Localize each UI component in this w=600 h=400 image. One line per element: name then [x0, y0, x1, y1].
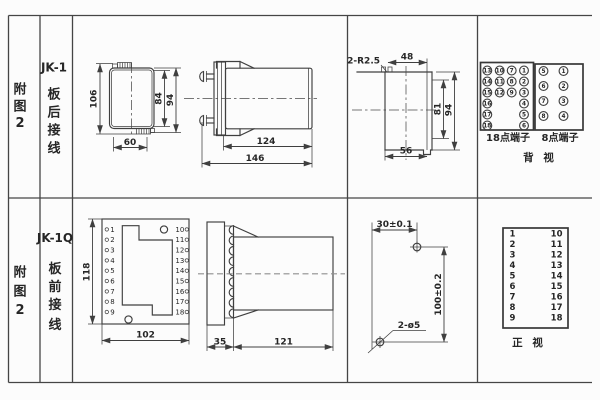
row2-side-view: 35 121: [198, 222, 345, 351]
terminal-number: 9: [510, 314, 516, 324]
row2-wiring-char: 接: [48, 297, 61, 313]
chamfer-line: [240, 62, 254, 69]
row2-index-cell: 附 图 2: [13, 265, 26, 319]
radius-callout: 2-R2.5: [347, 57, 380, 67]
terminal18-circles: 13 14 15 16 17 18 10 11 12 7 8 9 1 2 3 4…: [483, 66, 528, 130]
terminal-number: 5: [522, 113, 526, 119]
chamfer-line: [234, 310, 259, 318]
row1-back-terminals: 13 14 15 16 17 18 10 11 12 7 8 9 1 2 3 4…: [481, 63, 584, 165]
row2-front-terminal-table: 1 2 3 4 5 6 7 8 9 10 11 12 13 14 15 16 1…: [503, 228, 568, 349]
row1-wiring-char: 接: [47, 123, 60, 139]
dim-label-94: 94: [166, 94, 176, 107]
row2-model-cell: JK-1Q 板 前 接 线: [36, 231, 73, 333]
terminal-number: 10: [551, 230, 563, 240]
terminal-table-right-column: 10 11 12 13 14 15 16 17 18: [551, 230, 563, 324]
mount-hole: [160, 226, 167, 233]
terminal-number: 3: [522, 91, 526, 97]
terminal-number: 11: [175, 236, 184, 244]
dim-label-84: 84: [155, 92, 165, 105]
terminal-number: 2: [110, 236, 114, 244]
dim-label-48: 48: [401, 53, 414, 63]
dim-label-30: 30±0.1: [376, 220, 412, 230]
terminal-number: 8: [510, 80, 514, 86]
row2-model-label: JK-1Q: [36, 231, 73, 245]
terminal-number: 14: [483, 80, 491, 86]
row2-front-view: 1 2 3 4 5 6 7 8 9 10 11 12 13 14 15 16 1…: [83, 219, 190, 345]
terminal-number: 7: [510, 293, 516, 303]
screw-tab-hatched: [137, 129, 151, 135]
row2-index-char: 附: [13, 265, 26, 281]
dim-label-60: 60: [124, 138, 137, 148]
terminal-number: 13: [551, 261, 563, 271]
terminal-number: 4: [110, 257, 115, 265]
terminal-number: 8: [541, 114, 545, 120]
terminal-number: 6: [522, 124, 526, 130]
terminal-number: 12: [496, 91, 504, 97]
dim-label-35: 35: [214, 338, 227, 348]
terminal-number: 2: [510, 240, 516, 250]
terminal-number: 9: [110, 309, 114, 317]
terminal-number: 10: [496, 69, 504, 75]
terminal-number: 15: [551, 282, 563, 292]
terminal-number: 8: [510, 303, 516, 313]
terminal8-circles: 5 6 7 8 1 2 3 4: [539, 67, 568, 121]
terminal-number: 5: [510, 272, 516, 282]
screw-head: [200, 116, 204, 126]
screw-tab: [113, 64, 118, 68]
terminal-number: 4: [510, 261, 516, 271]
terminal-number: 5: [110, 267, 114, 275]
dim-label-118: 118: [83, 263, 93, 282]
row1-model-label: JK-1: [40, 61, 67, 75]
terminal-number: 4: [561, 114, 565, 120]
row1-index-char: 2: [15, 116, 24, 131]
terminal-number: 12: [551, 251, 563, 261]
mount-hole: [125, 316, 132, 323]
terminal-number: 2: [561, 84, 565, 90]
terminal-number: 16: [551, 293, 563, 303]
terminal-number: 1: [510, 230, 516, 240]
terminal-number: 6: [541, 84, 545, 90]
row1-index-char: 附: [13, 82, 26, 98]
r2.5-notch: [388, 67, 392, 72]
dim-label-100: 100±0.2: [434, 273, 444, 315]
dim-label-81: 81: [434, 103, 444, 116]
dim-label-94: 94: [445, 104, 455, 117]
terminal-number: 12: [175, 247, 184, 255]
terminal-number: 17: [175, 298, 184, 306]
terminal-table-left-column: 1 2 3 4 5 6 7 8 9: [510, 230, 516, 324]
terminal-screws-stack: [229, 226, 233, 318]
terminal-number: 16: [483, 102, 491, 108]
terminal-number: 3: [110, 247, 114, 255]
front-left-terminals: 1 2 3 4 5 6 7 8 9: [105, 226, 115, 317]
terminal-number: 6: [510, 282, 516, 292]
rear-view-label: 背 视: [523, 151, 557, 164]
row2-wiring-char: 线: [48, 317, 61, 333]
terminal-number: 17: [483, 113, 491, 119]
terminal-number: 16: [175, 288, 184, 296]
terminal-number: 13: [483, 69, 491, 75]
terminal-number: 7: [510, 69, 514, 75]
technical-drawing-sheet: 附 图 2 JK-1 板 后 接 线 106 84 94 60: [0, 0, 600, 400]
terminal-number: 1: [110, 226, 114, 234]
row2-index-char: 图: [13, 285, 26, 300]
hole-callout: 2-ø5: [398, 321, 420, 331]
chamfer-line: [234, 226, 259, 237]
terminal-number: 18: [483, 124, 491, 130]
row1-model-cell: JK-1 板 后 接 线: [40, 61, 67, 157]
front-view-label: 正 视: [512, 336, 546, 349]
terminal-number: 18: [175, 309, 184, 317]
row1-wiring-char: 板: [47, 87, 61, 103]
front-right-terminals: 10 11 12 13 14 15 16 17 18: [175, 226, 188, 317]
terminal-number: 7: [110, 288, 114, 296]
terminal-number: 10: [175, 226, 184, 234]
terminal-number: 15: [483, 91, 491, 97]
terminal-number: 13: [175, 257, 184, 265]
row1-index-cell: 附 图 2: [13, 82, 26, 132]
terminal-number: 17: [551, 303, 563, 313]
row2-mounting-holes: 30±0.1 100±0.2 2-ø5: [368, 220, 448, 353]
terminal-number: 14: [551, 272, 563, 282]
terminal-number: 15: [175, 278, 184, 286]
terminal-number: 18: [551, 314, 563, 324]
chamfer-line: [240, 129, 254, 136]
row1-wiring-char: 后: [47, 105, 60, 121]
terminal-number: 5: [541, 69, 545, 75]
dim-label-124: 124: [257, 137, 276, 147]
terminal-number: 14: [175, 267, 184, 275]
screw-tab-hatched: [118, 63, 132, 69]
row2-index-char: 2: [15, 303, 24, 318]
row2-wiring-char: 前: [48, 279, 61, 295]
terminal8-label: 8点端子: [542, 131, 579, 144]
terminal-number: 11: [551, 240, 563, 250]
screw-head: [200, 72, 204, 82]
terminal-number: 3: [510, 251, 516, 261]
terminal-number: 9: [510, 91, 514, 97]
inner-contour: [122, 226, 172, 315]
dim-label-121: 121: [274, 338, 293, 348]
dim-label-146: 146: [246, 154, 265, 164]
row1-index-char: 图: [13, 100, 26, 115]
row1-rear-view: 106 84 94 60: [90, 63, 182, 152]
row1-panel-cutout: 2-R2.5 48 81 94 56: [347, 53, 460, 161]
terminal-number: 6: [110, 278, 115, 286]
terminal-number: 4: [522, 102, 526, 108]
terminal-number: 2: [522, 80, 526, 86]
row2-wiring-char: 板: [48, 261, 62, 277]
dim-label-102: 102: [136, 331, 155, 341]
drawing-canvas: 附 图 2 JK-1 板 后 接 线 106 84 94 60: [0, 0, 600, 400]
terminal-number: 1: [561, 69, 565, 75]
terminal-number: 1: [522, 69, 526, 75]
row1-side-view: 124 146: [184, 62, 317, 168]
terminal-screw: [200, 71, 214, 82]
dim-label-106: 106: [90, 90, 100, 109]
terminal-number: 11: [496, 80, 504, 86]
terminal-number: 3: [561, 99, 565, 105]
row1-wiring-char: 线: [47, 141, 60, 157]
terminal18-label: 18点端子: [486, 131, 530, 144]
terminal-number: 8: [110, 298, 114, 306]
terminal-number: 7: [541, 99, 545, 105]
screw-tab: [151, 129, 155, 133]
